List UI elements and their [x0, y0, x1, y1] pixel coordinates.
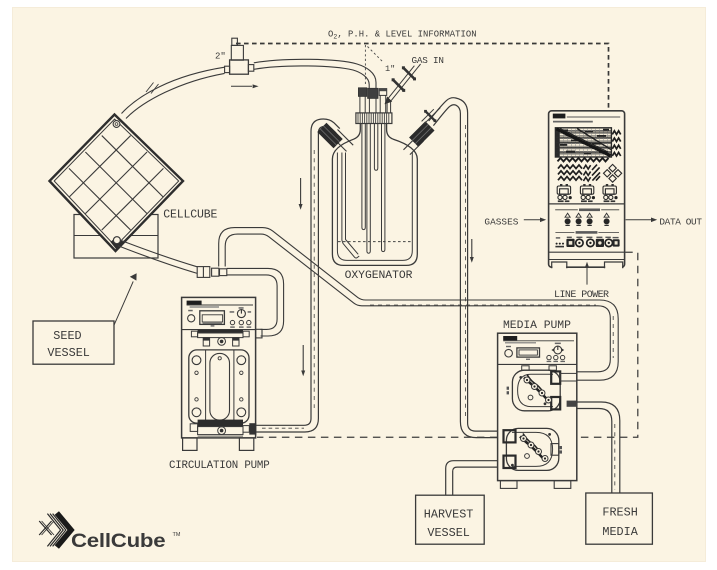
svg-text:HARVEST: HARVEST	[424, 508, 474, 522]
svg-text:1": 1"	[385, 64, 395, 74]
svg-text:GASSES: GASSES	[484, 217, 518, 228]
svg-text:DATA OUT: DATA OUT	[659, 217, 702, 228]
svg-text:GAS IN: GAS IN	[412, 55, 444, 66]
svg-text:TM: TM	[173, 532, 181, 538]
svg-text:OXYGENATOR: OXYGENATOR	[345, 270, 413, 282]
svg-text:O2, P.H. & LEVEL INFORMATION: O2, P.H. & LEVEL INFORMATION	[328, 30, 477, 41]
svg-text:MEDIA: MEDIA	[602, 525, 638, 539]
svg-text:CellCube: CellCube	[71, 530, 165, 551]
svg-text:2": 2"	[215, 52, 226, 62]
svg-text:CELLCUBE: CELLCUBE	[163, 208, 217, 221]
svg-text:SEED: SEED	[53, 329, 81, 343]
svg-text:FRESH: FRESH	[602, 505, 637, 519]
svg-text:VESSEL: VESSEL	[47, 346, 89, 360]
svg-text:VESSEL: VESSEL	[427, 526, 469, 540]
svg-text:MEDIA PUMP: MEDIA PUMP	[503, 320, 571, 332]
svg-text:LINE POWER: LINE POWER	[554, 290, 609, 301]
svg-text:CIRCULATION PUMP: CIRCULATION PUMP	[169, 460, 269, 472]
